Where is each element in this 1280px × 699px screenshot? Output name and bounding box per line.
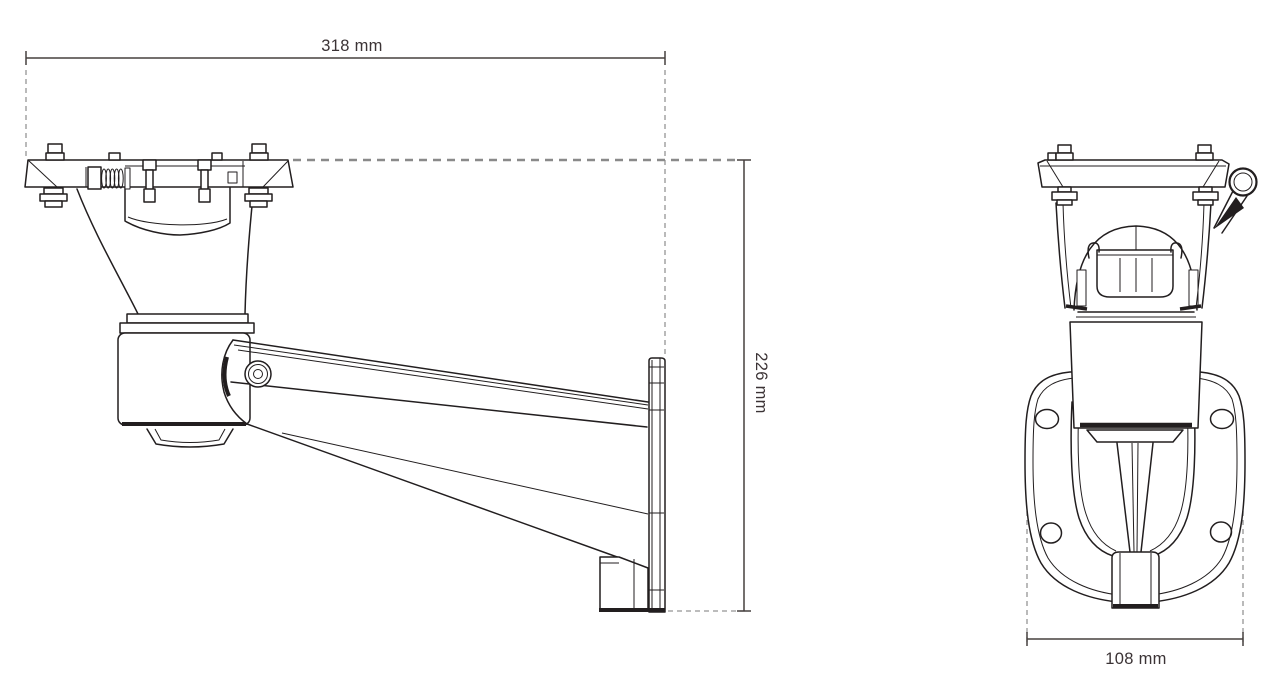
side-pivot-bolt bbox=[245, 361, 271, 387]
side-locking-nuts bbox=[40, 188, 272, 207]
side-mounting-plate bbox=[25, 160, 293, 187]
front-thumbscrews bbox=[1048, 145, 1213, 160]
dimension-label-base-width: 108 mm bbox=[1073, 650, 1199, 669]
dimension-label-overall-length: 318 mm bbox=[290, 37, 414, 56]
front-collar bbox=[1076, 312, 1196, 317]
dimension-overall-height bbox=[737, 160, 751, 611]
front-mounting-plate bbox=[1038, 160, 1229, 187]
front-neck bbox=[1070, 322, 1202, 442]
side-arm bbox=[222, 340, 648, 558]
dimension-label-overall-height: 226 mm bbox=[750, 315, 770, 451]
technical-drawing-canvas: 318 mm 226 mm 108 mm bbox=[0, 0, 1280, 699]
side-pivot-housing bbox=[118, 333, 250, 447]
side-funnel-body bbox=[77, 189, 254, 333]
dimension-base-width bbox=[1027, 632, 1243, 646]
front-standoff-nuts bbox=[1052, 187, 1218, 205]
front-clamp-tub bbox=[1077, 243, 1198, 306]
front-view bbox=[1025, 145, 1257, 608]
camera-wall-bracket-drawing bbox=[0, 0, 1280, 699]
front-foot bbox=[1112, 552, 1159, 608]
side-thumbscrews bbox=[46, 144, 268, 160]
side-view bbox=[25, 144, 665, 612]
side-wall-plate-foot bbox=[600, 557, 648, 611]
